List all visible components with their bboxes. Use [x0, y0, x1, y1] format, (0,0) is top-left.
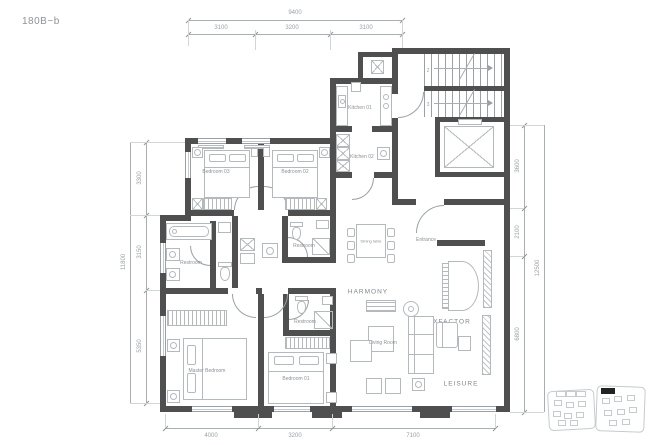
- extension-line: [510, 412, 544, 413]
- cabinet-icon: [336, 134, 350, 147]
- wall: [374, 172, 398, 178]
- zone-label-leisure: LEISURE: [444, 381, 479, 388]
- washbasin: [316, 220, 329, 229]
- grand-piano: [448, 261, 479, 311]
- site-building: [629, 407, 637, 413]
- extension-line: [510, 125, 544, 126]
- dim-top-total: 9400: [288, 10, 301, 16]
- door-arc-kitchen: [352, 178, 374, 200]
- ottoman: [366, 378, 382, 394]
- lamp-icon: [194, 149, 201, 156]
- dim-left-seg3: 5350: [137, 339, 143, 352]
- toilet-bowl: [220, 267, 230, 281]
- lamp-icon: [321, 149, 328, 156]
- room-label-living-room: Living Room: [369, 340, 397, 346]
- closet-icon: [240, 238, 255, 251]
- lamp-icon: [170, 342, 177, 349]
- site-building: [576, 391, 586, 397]
- wall: [358, 55, 363, 78]
- room-label-restroom-main: Restroom: [180, 260, 202, 266]
- stair-flight-number: 2: [427, 68, 430, 74]
- stair-flight-number: 3: [427, 102, 430, 108]
- dim-top-seg3: 3100: [359, 25, 372, 31]
- site-building: [576, 412, 584, 418]
- stair-arrow-icon: [488, 100, 493, 106]
- dining-chair: [387, 241, 395, 250]
- extension-line: [165, 414, 166, 428]
- basin-bowl-icon: [169, 251, 176, 258]
- dining-chair: [387, 254, 395, 263]
- pillow: [187, 373, 196, 393]
- blanket-line: [273, 167, 317, 168]
- blanket-line: [205, 167, 249, 168]
- nightstand: [326, 353, 337, 364]
- nightstand: [263, 147, 270, 157]
- wall: [330, 172, 352, 178]
- wardrobe: [203, 198, 232, 210]
- cabinet-icon: [336, 147, 350, 160]
- extension-line: [510, 256, 524, 257]
- window: [274, 406, 310, 412]
- wardrobe: [167, 310, 227, 326]
- wall-pier: [312, 412, 342, 418]
- pillow: [187, 345, 196, 365]
- site-building: [609, 420, 617, 426]
- sink-drain-icon: [340, 99, 345, 104]
- dimension-line: [524, 125, 525, 412]
- room-label-bedroom02: Bedroom 02: [281, 169, 308, 175]
- pillow: [297, 154, 314, 162]
- dim-left-total: 11800: [121, 254, 127, 270]
- room-label-bedroom01: Bedroom 01: [282, 376, 309, 382]
- site-building: [564, 413, 572, 419]
- label-entrance: Entrance: [416, 237, 436, 243]
- dim-bottom-seg3: 7100: [406, 433, 419, 439]
- sofa-cushion-line: [409, 354, 433, 355]
- stair-arrow-icon: [488, 65, 493, 71]
- dim-left-seg1: 3300: [137, 171, 143, 184]
- wall: [372, 126, 396, 132]
- toilet-bowl: [297, 301, 306, 314]
- dimension-line: [146, 142, 147, 403]
- room-label-bedroom03: Bedroom 03: [202, 169, 229, 175]
- sofa-back-line: [414, 317, 415, 373]
- lamp-icon: [415, 381, 422, 388]
- room-label-kitchen02: Kitchen 02: [350, 154, 374, 160]
- sofa-cushion-line: [409, 334, 433, 335]
- room-label-restroom-lower: Restroom: [294, 319, 316, 325]
- stair-direction-line: [434, 103, 488, 104]
- appliance: [351, 82, 361, 92]
- cabinet: [483, 250, 492, 308]
- extension-line: [130, 142, 185, 143]
- site-building: [617, 409, 625, 415]
- site-building: [578, 401, 586, 407]
- wall: [435, 172, 504, 177]
- site-building: [558, 420, 566, 426]
- nightstand: [326, 392, 337, 403]
- door-arc-entrance: [416, 205, 444, 233]
- dim-right-seg3: 6800: [515, 327, 521, 340]
- wall-pier: [234, 412, 272, 418]
- sofa: [408, 316, 434, 374]
- pillow: [277, 154, 294, 162]
- side-table: [458, 336, 471, 351]
- wall: [504, 48, 510, 412]
- window: [242, 138, 270, 144]
- extension-line: [495, 414, 496, 428]
- stair-direction-line: [434, 68, 488, 69]
- plan-title: 180B~b: [22, 16, 60, 27]
- dining-chair: [347, 254, 355, 263]
- wall: [437, 240, 485, 246]
- ottoman: [385, 378, 401, 394]
- dim-right-seg2: 2100: [515, 225, 521, 238]
- site-building: [554, 400, 562, 406]
- door-arc-master: [232, 294, 256, 318]
- dimension-line: [544, 125, 545, 412]
- wall: [185, 210, 234, 216]
- site-building: [602, 398, 610, 404]
- extension-line: [330, 30, 331, 50]
- site-building: [553, 411, 561, 417]
- wall: [435, 117, 440, 177]
- wall: [330, 78, 396, 84]
- wall: [398, 199, 416, 205]
- shaft-unit-icon: [371, 60, 384, 74]
- pillow: [209, 154, 226, 162]
- closet-icon: [192, 198, 203, 210]
- window: [452, 406, 496, 412]
- zone-label-harmony: HARMONY: [348, 289, 388, 296]
- wall: [232, 216, 238, 288]
- elevator-door: [458, 119, 482, 125]
- dim-top-seg1: 3100: [214, 25, 227, 31]
- washbasin: [218, 222, 231, 233]
- extension-line: [255, 30, 256, 50]
- extension-line: [510, 208, 524, 209]
- extension-line: [332, 414, 333, 428]
- extension-line: [130, 215, 160, 216]
- burner-icon: [383, 103, 389, 109]
- room-label-kitchen01: Kitchen 01: [348, 105, 372, 111]
- site-unit-highlight: [601, 388, 615, 394]
- dimension-line: [188, 20, 402, 21]
- pillow: [229, 154, 246, 162]
- dimension-line: [188, 34, 402, 35]
- burner-icon: [383, 94, 389, 100]
- dim-bottom-seg2: 3200: [288, 433, 301, 439]
- room-label-restroom-guest: Restroom: [293, 243, 315, 249]
- wall: [288, 288, 336, 294]
- lamp-icon: [170, 393, 177, 400]
- site-building: [566, 402, 574, 408]
- toilet-bowl: [292, 227, 301, 240]
- wall: [282, 257, 336, 263]
- wall: [336, 126, 352, 132]
- extension-line: [402, 20, 403, 48]
- tv-cabinet: [482, 315, 491, 375]
- window: [160, 316, 166, 356]
- dimension-line: [130, 142, 131, 403]
- radiator: [366, 300, 396, 312]
- armchair-line: [442, 323, 443, 347]
- dining-chair: [387, 228, 395, 237]
- basin-bowl-icon: [169, 271, 176, 278]
- pillow: [274, 356, 294, 365]
- armchair: [436, 322, 458, 348]
- window: [352, 406, 412, 412]
- extension-line: [146, 290, 160, 291]
- dim-bottom-seg1: 4000: [204, 433, 217, 439]
- closet-icon: [316, 198, 327, 210]
- wall: [160, 288, 228, 294]
- site-building: [566, 391, 576, 397]
- wall: [444, 199, 504, 205]
- dining-chair: [347, 228, 355, 237]
- extension-line: [188, 20, 189, 46]
- window: [192, 406, 232, 412]
- blanket-line: [269, 371, 323, 372]
- extension-line: [258, 414, 259, 428]
- site-building: [627, 395, 635, 401]
- wardrobe: [285, 337, 330, 349]
- appliance-dial-icon: [266, 247, 274, 255]
- dim-left-seg2: 3150: [137, 245, 143, 258]
- cabinet: [240, 253, 255, 264]
- wall: [283, 330, 336, 336]
- dim-right-total: 12500: [535, 260, 541, 277]
- site-building: [614, 396, 622, 402]
- washbasin: [322, 296, 333, 305]
- wardrobe: [285, 198, 315, 210]
- cabinet-icon: [336, 160, 350, 172]
- wall-pier: [420, 412, 450, 418]
- window: [185, 152, 191, 178]
- wall: [392, 54, 398, 94]
- wall: [288, 210, 330, 216]
- site-building: [622, 419, 630, 425]
- shower: [314, 311, 333, 329]
- drain-icon: [172, 229, 177, 234]
- dim-top-seg2: 3200: [285, 25, 298, 31]
- door-arc-lobby: [398, 92, 424, 118]
- dim-right-seg1: 3600: [515, 159, 521, 172]
- wall: [358, 52, 396, 57]
- window: [198, 138, 226, 144]
- dining-chair: [347, 241, 355, 250]
- room-label-master-bedroom: Master Bedroom: [189, 368, 226, 374]
- plant-icon: [408, 306, 414, 312]
- site-building: [570, 420, 578, 426]
- appliance-dial-icon: [380, 150, 387, 157]
- label-dining-table: Dining table: [360, 239, 381, 244]
- site-building: [556, 391, 566, 397]
- pillow: [299, 356, 319, 365]
- extension-line: [130, 403, 160, 404]
- elevator-x-icon: [444, 126, 494, 168]
- floor-plan-page: 180B~b 2 3: [0, 0, 660, 445]
- site-building: [604, 410, 612, 416]
